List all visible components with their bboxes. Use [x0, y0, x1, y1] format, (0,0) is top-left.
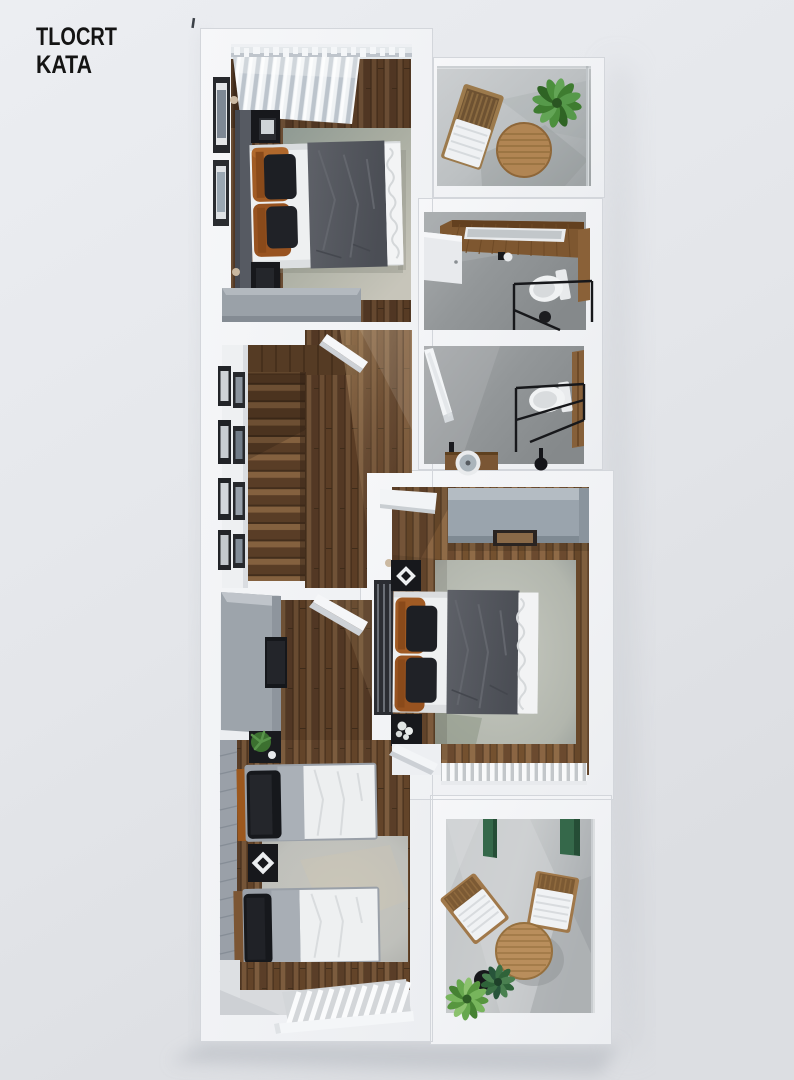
svg-text:KATA: KATA: [36, 51, 92, 79]
svg-text:TLOCRT: TLOCRT: [36, 23, 117, 51]
